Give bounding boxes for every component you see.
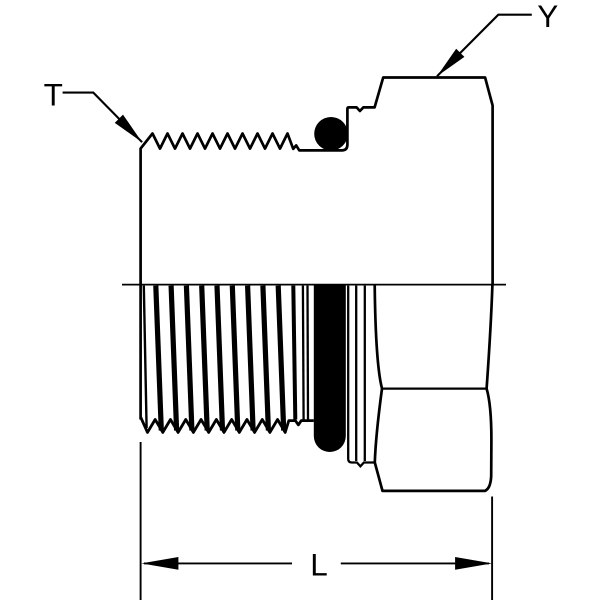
svg-text:Y: Y <box>537 0 558 34</box>
svg-text:T: T <box>44 77 63 113</box>
svg-text:L: L <box>310 547 328 583</box>
